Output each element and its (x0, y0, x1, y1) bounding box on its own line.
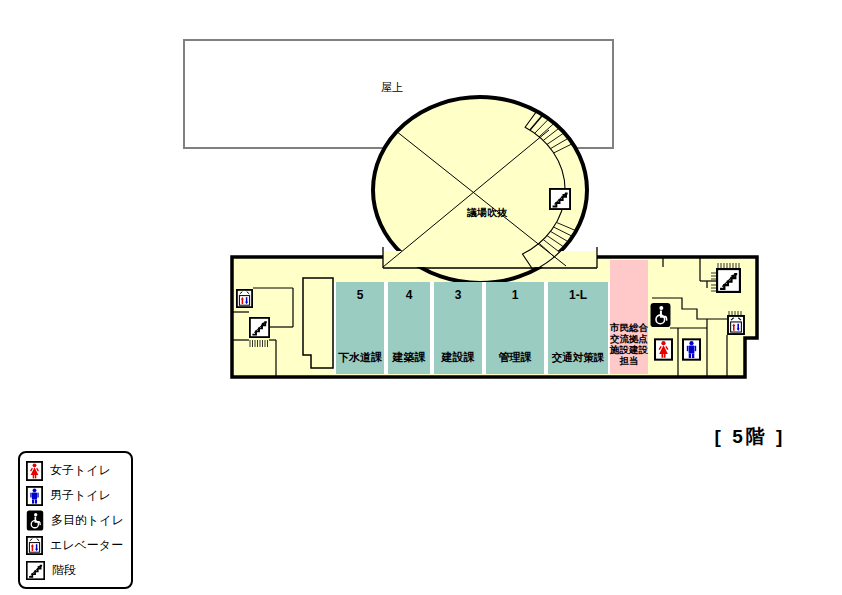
stairs-icon (250, 318, 269, 337)
legend-label: エレベーター (50, 537, 123, 554)
section-name: 管理課 (498, 351, 533, 363)
section-kenchiku: 4 建築課 (388, 282, 430, 374)
pink-line-4: 担当 (619, 355, 639, 366)
atrium-label: 議場吹抜 (466, 207, 508, 218)
legend-label: 女子トイレ (50, 462, 111, 479)
elevator-icon (728, 316, 744, 334)
section-shimin-sogo: 市民総合 交流拠点 施設建設 担当 (609, 260, 649, 374)
section-number: 5 (357, 288, 364, 302)
pink-line-2: 交流拠点 (609, 333, 648, 344)
pink-line-3: 施設建設 (609, 344, 649, 355)
section-kanri: 1 管理課 (486, 282, 544, 374)
legend-label: 階段 (52, 562, 76, 579)
female-toilet-icon (655, 339, 672, 359)
elevator-icon (26, 536, 43, 555)
section-name: 下水道課 (338, 351, 383, 363)
elevator-icon (237, 290, 252, 307)
accessible-toilet-icon (26, 510, 44, 531)
legend-row-male-toilet: 男子トイレ (26, 483, 125, 508)
female-toilet-icon (26, 461, 43, 481)
stairs-icon (26, 561, 45, 580)
floor-map-page: 屋上 (0, 0, 842, 595)
legend-row-female-toilet: 女子トイレ (26, 458, 125, 483)
department-sections: 5 下水道課 4 建築課 3 建設課 1 管理課 1-L 交通対策課 (336, 282, 608, 374)
legend-row-elevator: エレベーター (26, 533, 125, 558)
legend-row-stairs: 階段 (26, 558, 125, 583)
pink-line-1: 市民総合 (609, 322, 649, 333)
section-number: 1 (512, 288, 519, 302)
section-name: 交通対策課 (551, 351, 605, 364)
stairs-icon (550, 189, 570, 209)
shaft-column (303, 278, 333, 368)
section-kensetsu: 3 建設課 (434, 282, 482, 374)
rooftop-label: 屋上 (381, 81, 403, 93)
section-name: 建設課 (441, 351, 476, 363)
male-toilet-icon (683, 339, 700, 359)
section-number: 3 (455, 288, 462, 302)
legend-box: 女子トイレ 男子トイレ 多目的トイレ エレベーター 階段 (18, 451, 133, 589)
section-gesuido: 5 下水道課 (336, 282, 384, 374)
male-toilet-icon (26, 486, 43, 506)
section-number: 4 (406, 288, 413, 302)
legend-row-accessible-toilet: 多目的トイレ (26, 508, 125, 533)
section-name: 建築課 (392, 351, 427, 363)
section-number: 1-L (569, 288, 587, 302)
accessible-toilet-icon (651, 303, 671, 327)
floor-plan: 屋上 (0, 0, 842, 460)
legend-label: 男子トイレ (50, 487, 111, 504)
floor-label: [ 5階 ] (695, 424, 805, 450)
stairs-icon (717, 269, 740, 292)
section-kotsutaisaku: 1-L 交通対策課 (548, 282, 608, 374)
legend-label: 多目的トイレ (51, 512, 124, 529)
